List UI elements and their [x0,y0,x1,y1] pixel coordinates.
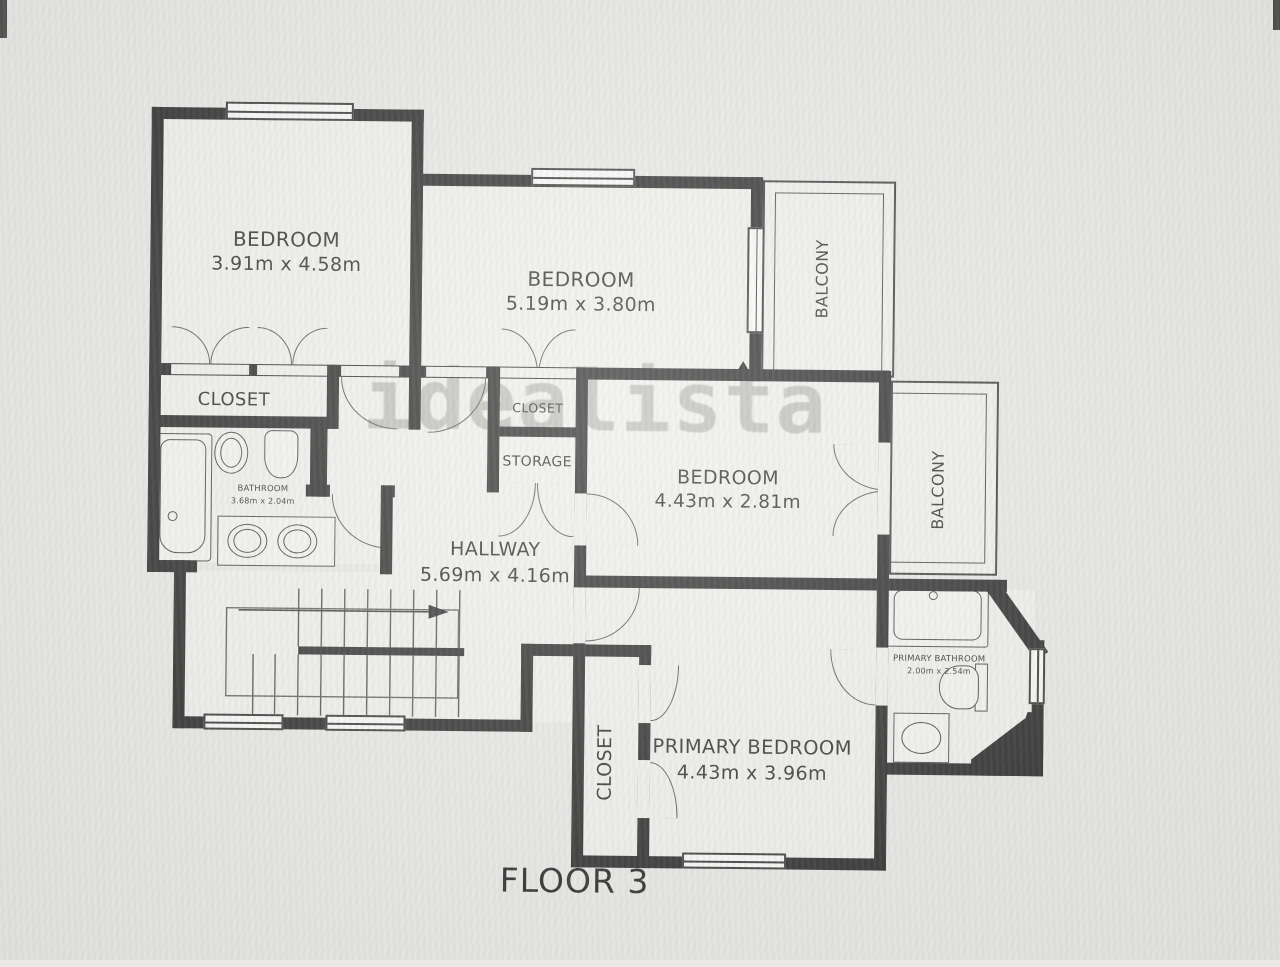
door-opening [637,760,650,818]
sink-basin-inner [283,529,311,553]
door-opening [638,665,651,723]
closet-middle-label: CLOSET [512,400,563,416]
wall [147,425,161,572]
window [203,713,283,730]
hallway-dims: 5.69m x 4.16m [420,564,570,588]
primary-bathroom-label: PRIMARY BATHROOM [893,654,985,665]
wall [172,560,186,728]
floorplan-photo: idealista [0,0,1280,960]
primary-bathroom-dims: 2.00m x 2.54m [907,666,971,676]
window [747,227,765,333]
balcony-right-label: BALCONY [928,450,948,529]
bedroom-top-middle-label: BEDROOM [527,267,634,292]
wall [147,560,197,573]
wall [306,485,330,497]
wall [327,365,340,429]
wall [380,494,393,574]
bedroom-middle-right-label: BEDROOM [677,466,779,489]
door-opening [574,493,587,545]
door-opening [257,365,327,376]
door-opening [573,587,586,643]
floor-title: FLOOR 3 [500,861,650,902]
bidet [264,430,299,478]
bedroom-top-middle-dims: 5.19m x 3.80m [506,293,656,317]
storage-label: STORAGE [502,454,572,471]
window [1029,648,1046,704]
bedroom-top-left-label: BEDROOM [233,227,340,252]
primary-bedroom-dims: 4.43m x 3.96m [677,761,827,785]
bathroom-label: BATHROOM [237,484,288,495]
door-opening [426,367,486,378]
shower-tray-inner [893,590,982,641]
bathroom-dims: 3.68m x 2.04m [231,496,295,506]
door-opening [500,368,576,379]
bedroom-middle-right-dims: 4.43m x 2.81m [654,491,801,514]
photo-edge-artifact [1273,0,1280,30]
window [226,102,354,121]
door-opening [341,366,399,377]
balcony-top-label: BALCONY [812,239,832,318]
primary-bedroom-label: PRIMARY BEDROOM [652,735,852,760]
bathtub-inner [159,439,206,553]
floor-hallway-low [182,570,574,722]
door-opening [876,647,889,705]
wall [520,644,533,732]
closet-left-label: CLOSET [198,389,271,411]
wall [877,578,1007,591]
floorplan-drawing: idealista [0,0,1280,967]
wall [874,578,889,870]
wall [487,426,587,437]
window [682,852,786,869]
bathtub-drain [168,511,178,521]
wall [875,762,1043,776]
door-opening [877,442,890,534]
hallway-label: HALLWAY [450,538,541,561]
closet-primary-label: CLOSET [594,724,617,800]
primary-bidet-basin [901,722,941,754]
sink-basin-inner [233,529,261,553]
wall [487,480,499,492]
photo-edge-artifact [0,0,7,38]
door-opening [171,364,249,375]
window [531,168,635,187]
window [325,715,405,732]
bedroom-top-left-dims: 3.91m x 4.58m [211,252,361,276]
shower-drain [929,591,938,600]
